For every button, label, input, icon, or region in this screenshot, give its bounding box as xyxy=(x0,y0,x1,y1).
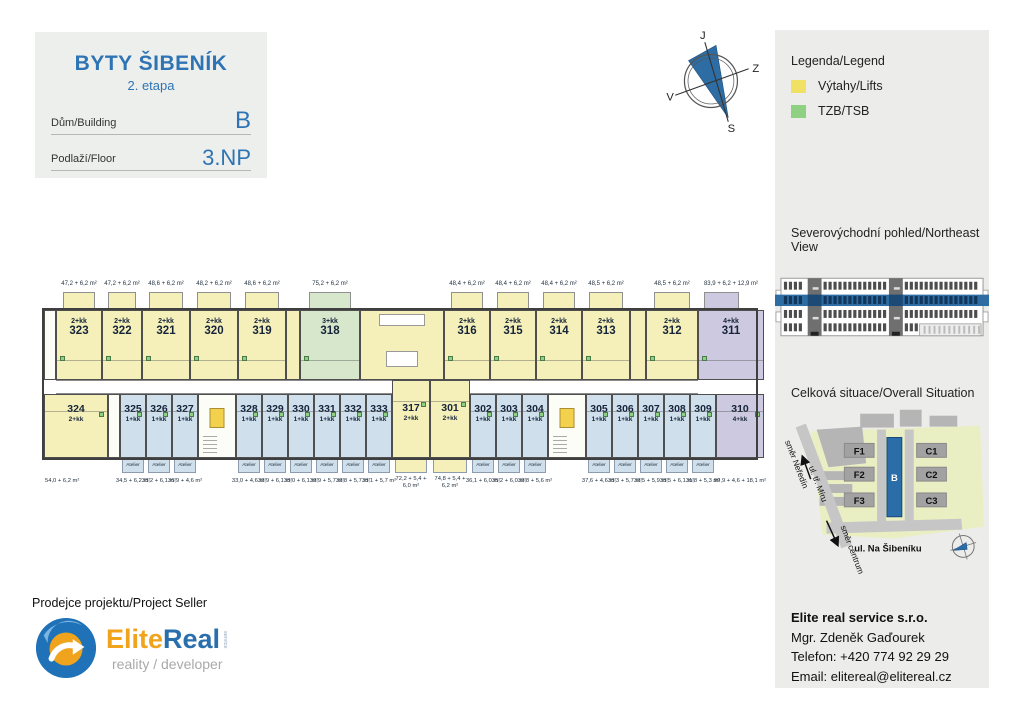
area-label-unit-318: 75,2 + 6,2 m² xyxy=(272,281,388,287)
situation-map: F1 F2 F3 C1 C2 C3 B směr Neředín ul. tř.… xyxy=(777,404,987,574)
unit-number: 324 xyxy=(45,404,107,416)
unit-type: 2+kk xyxy=(239,318,285,325)
plan-core xyxy=(548,394,586,458)
map-label-street: ul. Na Šibeníku xyxy=(854,542,922,553)
unit-number: 319 xyxy=(239,325,285,338)
atelier-balcony-unit-303: Atelier xyxy=(498,459,519,473)
unit-319: 2+kk31948,6 + 6,2 m² xyxy=(238,310,286,380)
unit-333: 3331+kkAtelier33,1 + 5,7 m² xyxy=(366,394,392,458)
atelier-balcony-unit-326: Atelier xyxy=(148,459,169,473)
tzb-marker xyxy=(494,356,499,361)
unit-326: 3261+kkAtelier33,2 + 6,1 m² xyxy=(146,394,172,458)
tzb-marker xyxy=(461,402,466,407)
unit-313: 2+kk31348,5 + 6,2 m² xyxy=(582,310,630,380)
tzb-marker xyxy=(279,412,284,417)
interior-wall-line xyxy=(699,360,763,361)
balcony-unit-321 xyxy=(149,292,182,310)
compass-label-j: J xyxy=(700,30,706,42)
logo-tagline: reality / developer xyxy=(112,656,223,672)
situation-title: Celková situace/Overall Situation xyxy=(791,386,974,400)
tzb-marker xyxy=(189,412,194,417)
tzb-marker xyxy=(304,356,309,361)
tzb-marker xyxy=(331,412,336,417)
unit-type: 2+kk xyxy=(57,318,101,325)
map-compass-icon xyxy=(950,534,976,560)
atelier-balcony-unit-306: Atelier xyxy=(614,459,635,473)
balcony-unit-319 xyxy=(245,292,278,310)
area-label-unit-327: 36,9 + 4,6 m² xyxy=(159,478,212,484)
tzb-marker xyxy=(194,356,199,361)
legend-item-label: TZB/TSB xyxy=(818,104,869,118)
unit-type: 2+kk xyxy=(491,318,535,325)
unit-329: 3291+kkAtelier32,9 + 6,1 m² xyxy=(262,394,288,458)
unit-309: 3091+kkAtelier31,8 + 5,3 m² xyxy=(690,394,716,458)
atelier-balcony-unit-309: Atelier xyxy=(692,459,713,473)
unit-318: 3+kk31875,2 + 6,2 m² xyxy=(300,310,360,380)
unit-type: 2+kk xyxy=(583,318,629,325)
tzb-marker xyxy=(357,412,362,417)
unit-type: 2+kk xyxy=(191,318,237,325)
elevation-drawing xyxy=(775,270,989,346)
balcony-unit-318 xyxy=(309,292,351,310)
tzb-marker xyxy=(253,412,258,417)
tzb-marker xyxy=(487,412,492,417)
atelier-balcony-unit-331: Atelier xyxy=(316,459,337,473)
unit-307: 3071+kkAtelier32,5 + 5,9 m² xyxy=(638,394,664,458)
unit-number: 314 xyxy=(537,325,581,338)
tzb-marker xyxy=(146,356,151,361)
unit-327: 3271+kkAtelier36,9 + 4,6 m² xyxy=(172,394,198,458)
unit-number: 312 xyxy=(647,325,697,338)
map-label-c2: C2 xyxy=(926,469,938,480)
unit-number: 318 xyxy=(301,325,359,338)
legend-item-tzb: TZB/TSB xyxy=(791,104,869,118)
compass-label-z: Z xyxy=(752,63,759,75)
unit-312: 2+kk31248,5 + 6,2 m² xyxy=(646,310,698,380)
tzb-marker xyxy=(60,356,65,361)
balcony-unit-323 xyxy=(63,292,95,310)
contact-company: Elite real service s.r.o. xyxy=(791,608,952,628)
unit-number: 315 xyxy=(491,325,535,338)
unit-type: 2+kk xyxy=(143,318,189,325)
atelier-balcony-unit-328: Atelier xyxy=(238,459,259,473)
interior-wall-line xyxy=(301,360,359,361)
unit-type: 2+kk xyxy=(431,415,469,422)
atelier-balcony-unit-308: Atelier xyxy=(666,459,687,473)
atelier-balcony-unit-330: Atelier xyxy=(290,459,311,473)
tzb-marker xyxy=(99,412,104,417)
legend-item-lifts: Výtahy/Lifts xyxy=(791,79,883,93)
unit-304: 3041+kkAtelier32,8 + 5,6 m² xyxy=(522,394,548,458)
project-header: BYTY ŠIBENÍK 2. etapa Dům/Building B Pod… xyxy=(35,32,267,178)
atelier-balcony-unit-333: Atelier xyxy=(368,459,389,473)
unit-type: 2+kk xyxy=(647,318,697,325)
project-subtitle: 2. etapa xyxy=(51,78,251,93)
floor-value: 3.NP xyxy=(202,147,251,169)
unit-323: 2+kk32347,2 + 6,2 m² xyxy=(56,310,102,380)
elevation-title: Severovýchodní pohled/Northeast View xyxy=(791,226,989,254)
tzb-color-swatch xyxy=(791,105,806,118)
building-row: Dům/Building B xyxy=(51,109,251,135)
balcony-unit-317 xyxy=(395,459,427,473)
tzb-marker xyxy=(707,412,712,417)
tzb-marker xyxy=(540,356,545,361)
contact-phone: Telefon: +420 774 92 29 29 xyxy=(791,647,952,667)
tzb-marker xyxy=(137,412,142,417)
building-value: B xyxy=(235,109,251,133)
elitereal-logo: EliteRealservice reality / developer xyxy=(34,614,254,686)
floorplan: 2+kk32347,2 + 6,2 m²2+kk32247,2 + 6,2 m²… xyxy=(42,280,760,512)
atelier-balcony-unit-302: Atelier xyxy=(472,459,493,473)
corridor xyxy=(56,380,698,394)
map-label-c3: C3 xyxy=(926,495,938,506)
lifts-color-swatch xyxy=(791,80,806,93)
tzb-marker xyxy=(106,356,111,361)
legend-title: Legenda/Legend xyxy=(791,54,885,68)
tzb-marker xyxy=(242,356,247,361)
unit-type: 2+kk xyxy=(393,415,429,422)
elitereal-logo-icon xyxy=(34,616,98,680)
tzb-marker xyxy=(448,356,453,361)
area-label-unit-304: 32,8 + 5,6 m² xyxy=(509,478,562,484)
page-title: BYTY ŠIBENÍK xyxy=(51,52,251,76)
unit-type: 3+kk xyxy=(301,318,359,325)
tzb-marker xyxy=(539,412,544,417)
elevator xyxy=(210,408,225,428)
core-stair xyxy=(386,351,419,367)
tzb-marker xyxy=(702,356,707,361)
top-unit-row: 2+kk32347,2 + 6,2 m²2+kk32247,2 + 6,2 m²… xyxy=(44,310,764,380)
unit-325: 3251+kkAtelier34,5 + 6,2 m² xyxy=(120,394,146,458)
sidebar: Legenda/Legend Výtahy/Lifts TZB/TSB Seve… xyxy=(775,30,989,688)
area-label-unit-333: 33,1 + 5,7 m² xyxy=(353,478,406,484)
unit-317: 3172+kk72,2 + 5,4 +6,0 m² xyxy=(392,380,430,458)
balcony-unit-320 xyxy=(197,292,230,310)
unit-330: 3301+kkAtelier33,0 + 6,1 m² xyxy=(288,394,314,458)
compass-label-v: V xyxy=(666,91,674,103)
building-label: Dům/Building xyxy=(51,117,116,133)
tzb-marker xyxy=(513,412,518,417)
unit-301: 3012+kk74,8 + 5,4 +6,2 m² xyxy=(430,380,470,458)
unit-310: 3104+kk99,9 + 4,6 + 18,1 m² xyxy=(716,394,764,458)
map-label-b: B xyxy=(891,472,898,483)
balcony-unit-322 xyxy=(108,292,135,310)
contact-email: Email: elitereal@elitereal.cz xyxy=(791,667,952,687)
staircase xyxy=(203,433,217,453)
unit-type: 2+kk xyxy=(45,416,107,423)
balcony-unit-311 xyxy=(704,292,739,310)
unit-328: 3281+kkAtelier33,0 + 4,6 m² xyxy=(236,394,262,458)
unit-number: 322 xyxy=(103,325,141,338)
unit-315: 2+kk31548,4 + 6,2 m² xyxy=(490,310,536,380)
map-label-f2: F2 xyxy=(854,469,865,480)
elevator xyxy=(560,408,575,428)
balcony-unit-314 xyxy=(543,292,575,310)
unit-number: 321 xyxy=(143,325,189,338)
balcony-unit-313 xyxy=(589,292,622,310)
tzb-marker xyxy=(305,412,310,417)
unit-314: 2+kk31448,4 + 6,2 m² xyxy=(536,310,582,380)
floor-label: Podlaží/Floor xyxy=(51,153,116,169)
atelier-balcony-unit-304: Atelier xyxy=(524,459,545,473)
legend-item-label: Výtahy/Lifts xyxy=(818,79,883,93)
balcony-unit-316 xyxy=(451,292,483,310)
tzb-marker xyxy=(681,412,686,417)
plan-gap xyxy=(108,394,120,458)
logo-wordmark: EliteRealservice xyxy=(106,624,228,655)
area-label-unit-310: 99,9 + 4,6 + 18,1 m² xyxy=(689,478,790,484)
atelier-balcony-unit-332: Atelier xyxy=(342,459,363,473)
unit-type: 2+kk xyxy=(103,318,141,325)
tzb-marker xyxy=(603,412,608,417)
plan-core xyxy=(360,310,444,380)
unit-324: 3242+kk54,0 + 6,2 m² xyxy=(44,394,108,458)
unit-332: 3321+kkAtelier32,8 + 5,7 m² xyxy=(340,394,366,458)
unit-306: 3061+kkAtelier33,3 + 5,7 m² xyxy=(612,394,638,458)
unit-316: 2+kk31648,4 + 6,2 m² xyxy=(444,310,490,380)
atelier-balcony-unit-305: Atelier xyxy=(588,459,609,473)
atelier-balcony-unit-307: Atelier xyxy=(640,459,661,473)
contact-person: Mgr. Zdeněk Gaďourek xyxy=(791,628,952,648)
unit-number: 320 xyxy=(191,325,237,338)
unit-322: 2+kk32247,2 + 6,2 m² xyxy=(102,310,142,380)
unit-type: 4+kk xyxy=(699,318,763,325)
tzb-marker xyxy=(383,412,388,417)
unit-321: 2+kk32148,6 + 6,2 m² xyxy=(142,310,190,380)
unit-number: 313 xyxy=(583,325,629,338)
unit-311: 4+kk31183,9 + 6,2 + 12,9 m² xyxy=(698,310,764,380)
unit-320: 2+kk32048,2 + 6,2 m² xyxy=(190,310,238,380)
atelier-balcony-unit-325: Atelier xyxy=(122,459,143,473)
plan-core xyxy=(198,394,236,458)
floor-row: Podlaží/Floor 3.NP xyxy=(51,147,251,171)
tzb-marker xyxy=(655,412,660,417)
unit-305: 3051+kkAtelier37,6 + 4,6 m² xyxy=(586,394,612,458)
plan-spacer xyxy=(630,310,646,380)
atelier-balcony-unit-327: Atelier xyxy=(174,459,195,473)
page: BYTY ŠIBENÍK 2. etapa Dům/Building B Pod… xyxy=(0,0,1024,724)
bottom-unit-row: 3242+kk54,0 + 6,2 m²3251+kkAtelier34,5 +… xyxy=(44,394,764,458)
tzb-marker xyxy=(586,356,591,361)
unit-type: 2+kk xyxy=(445,318,489,325)
plan-spacer xyxy=(286,310,300,380)
tzb-marker xyxy=(629,412,634,417)
balcony-unit-315 xyxy=(497,292,529,310)
contact-block: Elite real service s.r.o. Mgr. Zdeněk Ga… xyxy=(791,608,952,686)
tzb-marker xyxy=(163,412,168,417)
unit-type: 2+kk xyxy=(537,318,581,325)
staircase xyxy=(553,433,567,453)
seller-title: Prodejce projektu/Project Seller xyxy=(32,596,207,610)
unit-number: 311 xyxy=(699,325,763,338)
balcony-unit-312 xyxy=(654,292,690,310)
map-label-c1: C1 xyxy=(926,445,938,456)
unit-308: 3081+kkAtelier33,5 + 6,1 m² xyxy=(664,394,690,458)
unit-302: 3021+kkAtelier36,1 + 6,0 m² xyxy=(470,394,496,458)
plan-spacer xyxy=(44,310,56,380)
tzb-marker xyxy=(421,402,426,407)
unit-331: 3311+kkAtelier32,9 + 5,7 m² xyxy=(314,394,340,458)
compass-rose-icon: J Z V S xyxy=(663,28,765,134)
compass-label-s: S xyxy=(728,123,735,134)
tzb-marker xyxy=(755,412,760,417)
tzb-marker xyxy=(650,356,655,361)
unit-number: 316 xyxy=(445,325,489,338)
map-label-f1: F1 xyxy=(854,445,865,456)
unit-303: 3031+kkAtelier35,2 + 6,0 m² xyxy=(496,394,522,458)
atelier-balcony-unit-329: Atelier xyxy=(264,459,285,473)
map-label-f3: F3 xyxy=(854,495,865,506)
balcony-unit-301 xyxy=(433,459,466,473)
core-lightwell xyxy=(379,314,425,326)
interior-wall-line xyxy=(45,411,107,412)
unit-number: 323 xyxy=(57,325,101,338)
